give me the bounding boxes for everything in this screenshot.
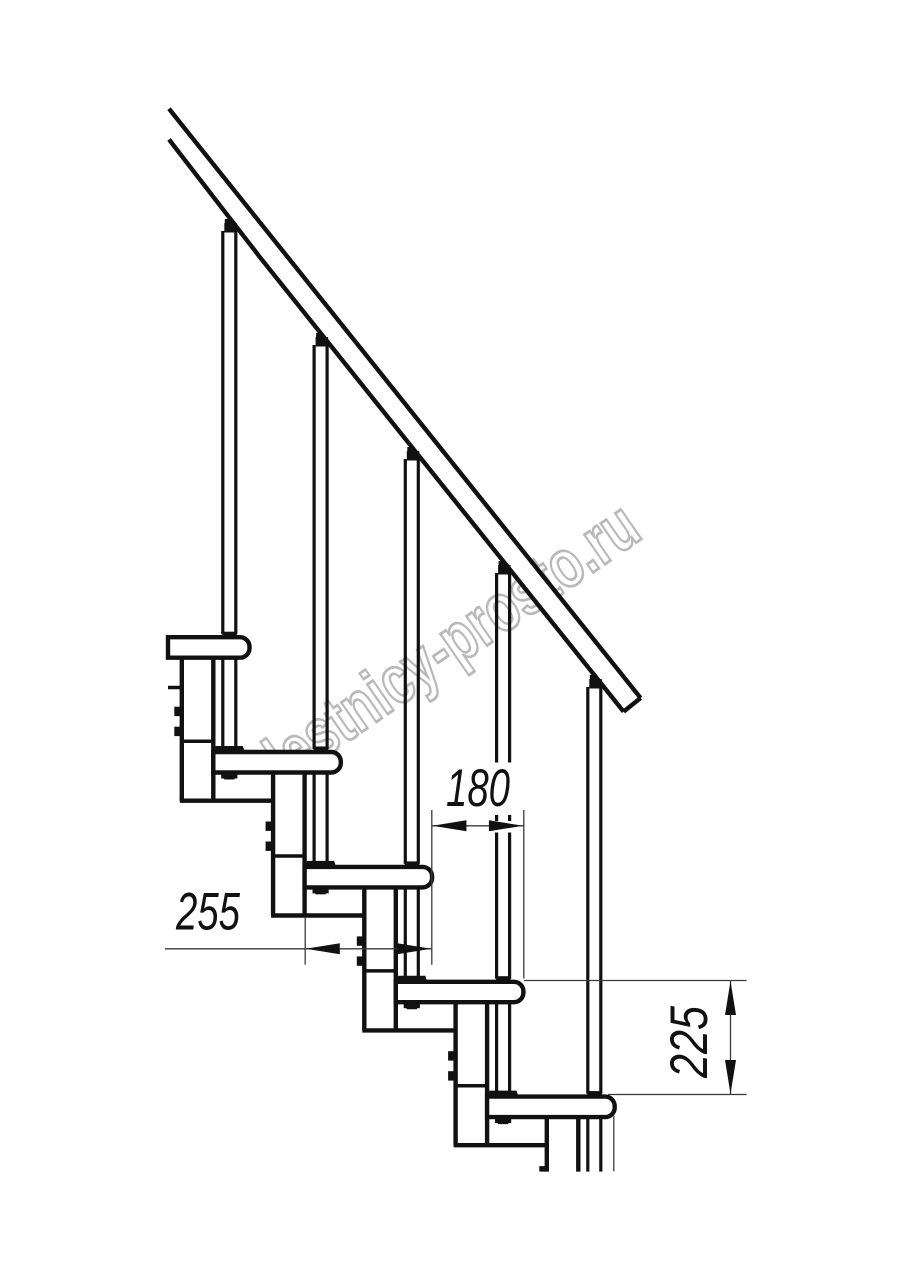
svg-text:225: 225 [660, 1006, 719, 1079]
svg-text:255: 255 [175, 883, 240, 942]
svg-text:180: 180 [446, 759, 510, 818]
